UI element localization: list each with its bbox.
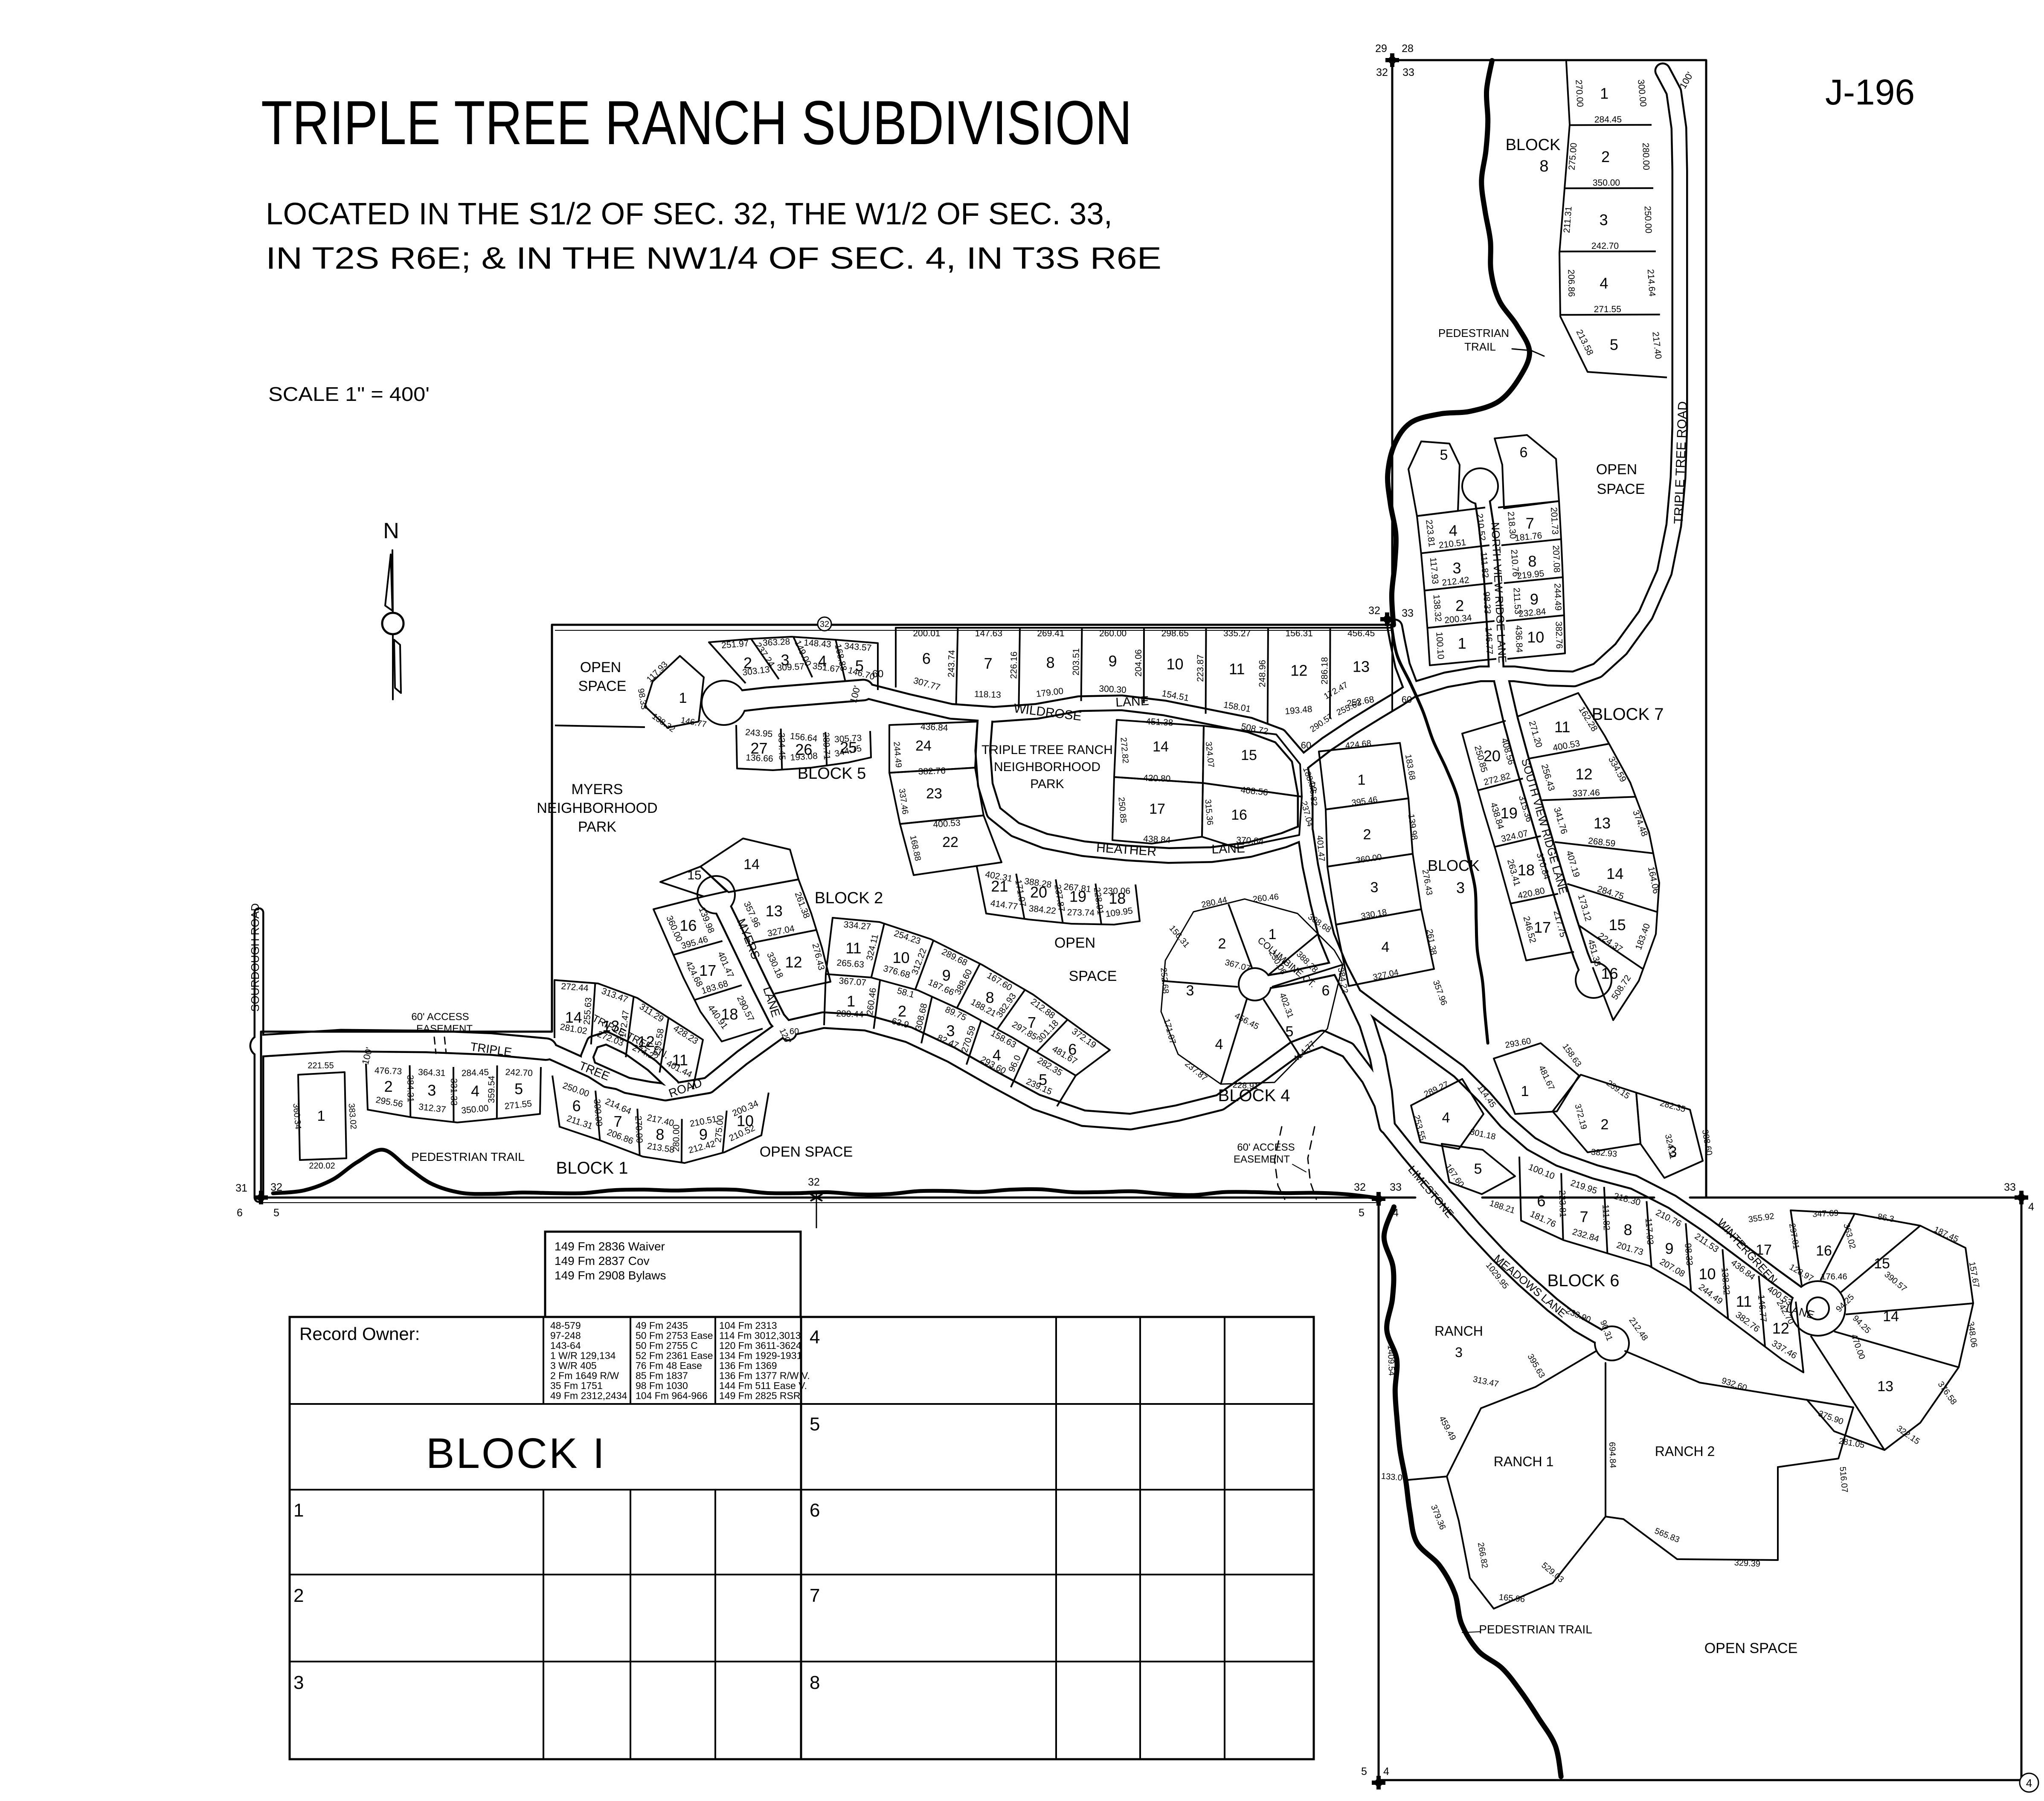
svg-text:7: 7 (810, 1585, 820, 1606)
svg-text:15: 15 (1241, 747, 1257, 763)
svg-text:329.39: 329.39 (1734, 1558, 1760, 1569)
svg-text:Record Owner:: Record Owner: (299, 1324, 420, 1344)
svg-text:284.45: 284.45 (1594, 115, 1622, 125)
svg-text:305.73: 305.73 (834, 733, 862, 745)
svg-text:280.00: 280.00 (1640, 142, 1651, 170)
svg-text:2: 2 (1601, 1117, 1609, 1133)
svg-text:3: 3 (1370, 879, 1379, 896)
svg-text:3: 3 (1600, 211, 1608, 229)
svg-text:1409.54: 1409.54 (1386, 1345, 1397, 1376)
svg-text:LOCATED IN THE S1/2 OF SEC. 32: LOCATED IN THE S1/2 OF SEC. 32, THE W1/2… (266, 197, 1112, 231)
svg-text:BLOCK 5: BLOCK 5 (798, 765, 866, 783)
svg-text:49 Fm 2435: 49 Fm 2435 (636, 1320, 688, 1331)
svg-text:104 Fm 2313: 104 Fm 2313 (719, 1320, 777, 1331)
svg-text:3: 3 (1455, 1345, 1463, 1360)
svg-text:1: 1 (1600, 85, 1608, 102)
svg-text:8: 8 (1046, 654, 1055, 671)
svg-text:TRIPLE TREE RANCH: TRIPLE TREE RANCH (981, 743, 1113, 757)
svg-text:48-579: 48-579 (550, 1320, 581, 1331)
svg-text:NEIGHBORHOOD: NEIGHBORHOOD (537, 800, 657, 816)
svg-text:60' ACCESS: 60' ACCESS (411, 1011, 469, 1023)
svg-text:98 Fm 1030: 98 Fm 1030 (636, 1380, 688, 1391)
svg-text:13: 13 (766, 902, 783, 920)
svg-text:243.95: 243.95 (745, 728, 773, 740)
svg-text:LANE: LANE (1115, 694, 1150, 710)
svg-text:N: N (383, 519, 399, 543)
svg-text:300.30: 300.30 (1099, 684, 1127, 695)
svg-text:SOURDOUGH ROAD: SOURDOUGH ROAD (249, 903, 261, 1012)
svg-text:BLOCK 2: BLOCK 2 (815, 889, 883, 907)
svg-text:MYERS: MYERS (572, 781, 623, 798)
svg-text:97-248: 97-248 (550, 1330, 581, 1341)
svg-text:223.87: 223.87 (1196, 655, 1205, 682)
svg-text:1 W/R 129,134: 1 W/R 129,134 (550, 1350, 616, 1361)
svg-text:PEDESTRIAN: PEDESTRIAN (1438, 327, 1509, 339)
svg-text:456.45: 456.45 (1347, 629, 1375, 638)
svg-text:476.73: 476.73 (375, 1066, 402, 1076)
svg-text:250.00: 250.00 (1643, 206, 1654, 233)
svg-text:BLOCK 6: BLOCK 6 (1548, 1271, 1620, 1290)
svg-text:1: 1 (1358, 772, 1366, 788)
svg-text:147.63: 147.63 (975, 629, 1002, 638)
svg-text:4: 4 (1215, 1036, 1223, 1053)
svg-text:289.71: 289.71 (821, 732, 832, 760)
svg-text:100.10: 100.10 (1434, 632, 1446, 660)
svg-text:451.38: 451.38 (1146, 716, 1173, 728)
svg-text:436.84: 436.84 (920, 722, 949, 733)
svg-text:11: 11 (1229, 660, 1245, 678)
svg-text:2 Fm 1649 R/W: 2 Fm 1649 R/W (550, 1370, 619, 1381)
svg-text:33: 33 (1402, 67, 1414, 78)
svg-text:2: 2 (1455, 597, 1464, 615)
svg-text:98.33: 98.33 (1481, 592, 1492, 615)
svg-text:2: 2 (1601, 148, 1610, 165)
svg-text:8: 8 (986, 989, 994, 1006)
svg-text:15: 15 (1874, 1256, 1890, 1272)
svg-text:TRAIL: TRAIL (1464, 340, 1496, 353)
svg-text:363.28: 363.28 (762, 637, 790, 648)
svg-text:117.93: 117.93 (1643, 1218, 1655, 1245)
svg-text:60: 60 (1402, 694, 1412, 705)
svg-text:15: 15 (687, 868, 701, 882)
svg-text:1: 1 (679, 690, 687, 706)
svg-text:13: 13 (1594, 814, 1611, 832)
svg-text:5: 5 (1286, 1024, 1294, 1040)
svg-text:17: 17 (1534, 919, 1551, 936)
svg-text:15: 15 (1609, 916, 1626, 934)
svg-text:76 Fm 48 Ease: 76 Fm 48 Ease (636, 1360, 702, 1371)
svg-text:149 Fm 2825 RSR: 149 Fm 2825 RSR (719, 1390, 800, 1401)
svg-text:32: 32 (820, 620, 829, 629)
svg-text:207.08: 207.08 (1551, 545, 1562, 573)
svg-text:143-64: 143-64 (550, 1340, 581, 1351)
svg-text:400.53: 400.53 (933, 818, 961, 829)
svg-text:16: 16 (1231, 807, 1247, 823)
svg-text:364.31: 364.31 (418, 1067, 446, 1078)
svg-text:144 Fm 511 Ease V.: 144 Fm 511 Ease V. (719, 1380, 807, 1391)
svg-text:16: 16 (679, 917, 697, 934)
svg-text:337.46: 337.46 (1572, 788, 1600, 798)
svg-text:4: 4 (2026, 1777, 2032, 1789)
svg-text:SPACE: SPACE (1069, 968, 1117, 984)
svg-text:RANCH 1: RANCH 1 (1494, 1454, 1553, 1469)
svg-text:SPACE: SPACE (1597, 481, 1645, 497)
svg-text:273.74: 273.74 (1067, 908, 1095, 918)
svg-text:8: 8 (810, 1672, 820, 1693)
svg-text:PARK: PARK (578, 819, 616, 835)
svg-text:230.06: 230.06 (1103, 886, 1130, 896)
svg-text:3: 3 (1456, 879, 1465, 896)
svg-text:BLOCK: BLOCK (1506, 136, 1561, 154)
svg-text:14: 14 (1606, 865, 1623, 882)
svg-text:248.96: 248.96 (1257, 660, 1267, 687)
svg-text:149 Fm 2836 Waiver: 149 Fm 2836 Waiver (555, 1240, 665, 1253)
svg-text:11: 11 (845, 939, 861, 957)
svg-text:OPEN: OPEN (1054, 935, 1095, 951)
svg-text:EASEMENT: EASEMENT (1234, 1154, 1290, 1165)
svg-text:203.51: 203.51 (1071, 648, 1081, 676)
svg-text:4: 4 (1393, 1207, 1399, 1219)
svg-text:1: 1 (293, 1500, 304, 1521)
svg-text:32: 32 (1354, 1181, 1366, 1193)
svg-text:RANCH: RANCH (1434, 1323, 1483, 1339)
svg-text:136 Fm 1377 R/W V.: 136 Fm 1377 R/W V. (719, 1370, 810, 1381)
svg-text:7: 7 (1580, 1208, 1588, 1226)
svg-text:BLOCK 1: BLOCK 1 (556, 1159, 628, 1177)
svg-text:32: 32 (270, 1181, 282, 1193)
svg-text:138.32: 138.32 (1431, 594, 1443, 622)
svg-text:9: 9 (942, 967, 951, 984)
svg-text:221.55: 221.55 (308, 1061, 334, 1070)
svg-text:IN T2S R6E; & IN THE NW1/: IN T2S R6E; & IN THE NW1/4 OF SEC. 4, IN… (266, 241, 1161, 276)
svg-text:50 Fm 2753 Ease: 50 Fm 2753 Ease (636, 1330, 713, 1341)
svg-text:SCALE 1" = 400': SCALE 1" = 400' (268, 383, 430, 405)
svg-text:5: 5 (1474, 1161, 1482, 1177)
svg-text:244.49: 244.49 (1552, 583, 1563, 611)
svg-text:193.08: 193.08 (790, 751, 818, 763)
svg-text:134 Fm 1929-1931: 134 Fm 1929-1931 (719, 1350, 802, 1361)
svg-text:335.27: 335.27 (1223, 629, 1251, 638)
svg-text:200.01: 200.01 (913, 629, 940, 638)
svg-text:5: 5 (1610, 336, 1618, 354)
svg-text:9: 9 (1109, 653, 1117, 670)
svg-text:TRIPLE TREE RANCH SUBDIVISI: TRIPLE TREE RANCH SUBDIVISION (261, 88, 1132, 157)
svg-text:243.74: 243.74 (947, 650, 957, 677)
svg-text:309.57: 309.57 (777, 661, 804, 673)
svg-text:OPEN SPACE: OPEN SPACE (760, 1144, 853, 1160)
svg-text:17: 17 (1149, 801, 1165, 817)
svg-text:149 Fm 2908 Bylaws: 149 Fm 2908 Bylaws (555, 1269, 666, 1282)
svg-text:24: 24 (915, 738, 932, 754)
svg-text:220.02: 220.02 (309, 1161, 335, 1171)
svg-text:35 Fm 1751: 35 Fm 1751 (550, 1380, 603, 1391)
svg-text:4: 4 (1600, 274, 1608, 292)
svg-text:23: 23 (926, 786, 942, 802)
svg-text:12: 12 (785, 953, 802, 971)
svg-text:NEIGHBORHOOD: NEIGHBORHOOD (994, 760, 1100, 774)
svg-text:136.66: 136.66 (746, 753, 773, 764)
svg-text:6: 6 (1520, 444, 1528, 461)
svg-text:4: 4 (810, 1327, 820, 1348)
svg-text:242.70: 242.70 (505, 1067, 533, 1079)
svg-text:29: 29 (1375, 43, 1387, 55)
svg-text:3: 3 (1452, 560, 1461, 577)
svg-text:6: 6 (572, 1097, 581, 1115)
svg-text:33: 33 (1390, 1181, 1402, 1193)
svg-text:16: 16 (1816, 1243, 1832, 1259)
svg-text:60: 60 (1301, 740, 1311, 751)
svg-text:5: 5 (1361, 1766, 1367, 1778)
svg-text:214.64: 214.64 (1646, 269, 1657, 297)
svg-text:384.31: 384.31 (405, 1075, 415, 1102)
svg-text:265.63: 265.63 (836, 958, 865, 970)
svg-text:1: 1 (317, 1108, 325, 1124)
svg-text:269.41: 269.41 (1037, 629, 1064, 638)
svg-text:14: 14 (1153, 739, 1169, 755)
svg-text:228.91: 228.91 (1232, 1080, 1259, 1091)
svg-text:118.13: 118.13 (974, 689, 1001, 700)
svg-text:223.81: 223.81 (1557, 1190, 1568, 1218)
svg-text:8: 8 (1528, 553, 1536, 570)
svg-text:6: 6 (237, 1207, 243, 1219)
svg-text:146.77: 146.77 (1483, 627, 1494, 655)
svg-text:BLOCK I: BLOCK I (426, 1430, 607, 1477)
svg-text:284.45: 284.45 (461, 1067, 489, 1078)
svg-text:J-196: J-196 (1825, 72, 1915, 112)
svg-text:10: 10 (892, 949, 909, 966)
svg-text:242.70: 242.70 (1591, 241, 1619, 251)
svg-text:14: 14 (1883, 1308, 1899, 1325)
svg-text:2: 2 (384, 1078, 393, 1095)
svg-text:60: 60 (872, 668, 884, 680)
svg-text:OPEN: OPEN (1596, 461, 1637, 478)
svg-text:271.55: 271.55 (1594, 305, 1621, 314)
svg-text:13: 13 (1877, 1378, 1893, 1395)
svg-text:204.06: 204.06 (1134, 649, 1144, 676)
svg-text:270.00: 270.00 (633, 1116, 644, 1143)
svg-text:359.54: 359.54 (487, 1076, 496, 1103)
svg-text:10: 10 (1166, 655, 1183, 673)
svg-text:4: 4 (1442, 1110, 1450, 1126)
svg-text:32: 32 (1376, 67, 1388, 78)
svg-text:9: 9 (1665, 1240, 1673, 1257)
svg-text:PEDESTRIAN TRAIL: PEDESTRIAN TRAIL (411, 1150, 525, 1163)
svg-text:260.00: 260.00 (1099, 629, 1127, 638)
svg-text:114 Fm 3012,3013: 114 Fm 3012,3013 (719, 1330, 801, 1341)
svg-text:EASEMENT: EASEMENT (416, 1023, 473, 1035)
svg-text:OPEN: OPEN (580, 659, 621, 676)
svg-text:4: 4 (2028, 1201, 2034, 1213)
svg-text:2: 2 (293, 1585, 304, 1606)
svg-text:148.43: 148.43 (804, 638, 832, 649)
svg-text:156.31: 156.31 (1286, 629, 1313, 638)
svg-text:12: 12 (1575, 766, 1592, 783)
svg-text:436.84: 436.84 (1513, 625, 1524, 653)
svg-text:270.00: 270.00 (1574, 79, 1585, 107)
svg-text:8: 8 (1539, 157, 1548, 175)
svg-text:176.46: 176.46 (1821, 1272, 1847, 1282)
svg-text:32: 32 (1368, 605, 1380, 617)
svg-text:201.73: 201.73 (1549, 507, 1560, 535)
svg-text:16: 16 (1601, 965, 1618, 982)
svg-text:13: 13 (1353, 658, 1370, 675)
svg-text:350.00: 350.00 (1593, 178, 1620, 188)
svg-text:286.18: 286.18 (1320, 657, 1330, 684)
svg-text:10: 10 (1698, 1265, 1716, 1283)
svg-text:14: 14 (743, 856, 760, 873)
svg-text:4: 4 (1383, 1766, 1389, 1778)
svg-text:28: 28 (1402, 43, 1414, 55)
svg-text:420.80: 420.80 (1143, 773, 1171, 784)
svg-text:111.82: 111.82 (1478, 551, 1490, 578)
svg-text:111.82: 111.82 (1600, 1204, 1611, 1230)
svg-text:4: 4 (471, 1082, 479, 1099)
svg-text:31: 31 (235, 1182, 247, 1194)
svg-text:2: 2 (1218, 936, 1226, 952)
svg-text:6: 6 (1322, 983, 1330, 999)
svg-text:BLOCK: BLOCK (1428, 857, 1480, 874)
svg-text:1: 1 (1458, 635, 1466, 652)
svg-text:334.45: 334.45 (776, 733, 787, 760)
svg-text:3: 3 (427, 1082, 436, 1099)
svg-text:PEDESTRIAN TRAIL: PEDESTRIAN TRAIL (1479, 1623, 1592, 1636)
svg-text:211.53: 211.53 (1511, 587, 1522, 615)
svg-text:OPEN SPACE: OPEN SPACE (1704, 1640, 1798, 1656)
svg-text:226.16: 226.16 (1009, 651, 1019, 679)
svg-text:2: 2 (898, 1002, 906, 1020)
svg-text:5: 5 (810, 1414, 820, 1435)
svg-text:11: 11 (1554, 718, 1570, 736)
svg-text:694.84: 694.84 (1607, 1442, 1617, 1468)
svg-text:1: 1 (1521, 1083, 1529, 1099)
svg-text:382.76: 382.76 (918, 766, 946, 777)
svg-text:206.86: 206.86 (1566, 270, 1577, 297)
svg-text:5: 5 (273, 1207, 279, 1219)
svg-text:7: 7 (614, 1113, 622, 1130)
svg-text:7: 7 (1526, 515, 1534, 532)
svg-text:85 Fm 1837: 85 Fm 1837 (636, 1370, 688, 1381)
svg-text:4: 4 (1382, 939, 1390, 955)
svg-text:8: 8 (1623, 1221, 1632, 1238)
svg-text:149 Fm 2837 Cov: 149 Fm 2837 Cov (555, 1254, 650, 1267)
svg-text:52 Fm 2361 Ease: 52 Fm 2361 Ease (636, 1350, 713, 1361)
svg-text:11: 11 (1736, 1293, 1752, 1310)
svg-text:6: 6 (922, 650, 931, 667)
svg-text:5: 5 (1359, 1207, 1365, 1219)
svg-text:298.65: 298.65 (1161, 629, 1189, 638)
svg-text:SPACE: SPACE (578, 678, 627, 694)
svg-text:280.44: 280.44 (836, 1009, 864, 1020)
svg-text:LANE: LANE (1211, 841, 1245, 857)
svg-text:6: 6 (1537, 1192, 1545, 1209)
svg-text:12: 12 (1290, 662, 1307, 679)
svg-text:BLOCK 7: BLOCK 7 (1592, 705, 1664, 724)
svg-text:33: 33 (2004, 1181, 2016, 1193)
svg-text:10: 10 (1527, 629, 1544, 646)
svg-text:22: 22 (942, 834, 958, 850)
svg-text:1: 1 (847, 992, 855, 1010)
svg-text:136 Fm 1369: 136 Fm 1369 (719, 1360, 777, 1371)
svg-text:60: 60 (790, 1027, 799, 1036)
svg-text:1: 1 (1269, 926, 1277, 943)
svg-text:RANCH 2: RANCH 2 (1655, 1444, 1715, 1459)
svg-text:331.33: 331.33 (449, 1078, 459, 1105)
svg-text:2: 2 (1363, 827, 1371, 843)
svg-text:8: 8 (656, 1125, 664, 1143)
svg-text:120 Fm 3611-3624: 120 Fm 3611-3624 (719, 1340, 801, 1351)
svg-text:367.07: 367.07 (839, 976, 867, 988)
svg-text:3: 3 (1186, 983, 1194, 999)
svg-text:3 W/R 405: 3 W/R 405 (550, 1360, 597, 1371)
svg-text:347.69: 347.69 (1812, 1208, 1839, 1219)
svg-text:4: 4 (1449, 522, 1458, 539)
svg-text:60' ACCESS: 60' ACCESS (1237, 1142, 1295, 1153)
svg-text:5: 5 (1440, 447, 1448, 463)
svg-text:9: 9 (1530, 591, 1539, 608)
svg-text:6: 6 (810, 1500, 820, 1521)
svg-text:PARK: PARK (1030, 777, 1064, 791)
svg-text:49 Fm 2312,2434: 49 Fm 2312,2434 (550, 1390, 627, 1401)
svg-text:98.33: 98.33 (1683, 1243, 1694, 1266)
svg-text:210.76: 210.76 (1509, 549, 1521, 577)
svg-text:50 Fm 2755 C: 50 Fm 2755 C (636, 1340, 698, 1351)
svg-text:17: 17 (699, 962, 716, 979)
svg-text:3: 3 (293, 1672, 304, 1693)
svg-text:5: 5 (514, 1080, 523, 1098)
svg-text:33: 33 (1402, 607, 1414, 619)
svg-text:7: 7 (984, 655, 993, 672)
svg-text:438.84: 438.84 (1143, 834, 1171, 845)
svg-text:104 Fm 964-966: 104 Fm 964-966 (636, 1390, 708, 1401)
svg-text:382.76: 382.76 (1553, 621, 1564, 649)
svg-text:32: 32 (808, 1176, 820, 1188)
